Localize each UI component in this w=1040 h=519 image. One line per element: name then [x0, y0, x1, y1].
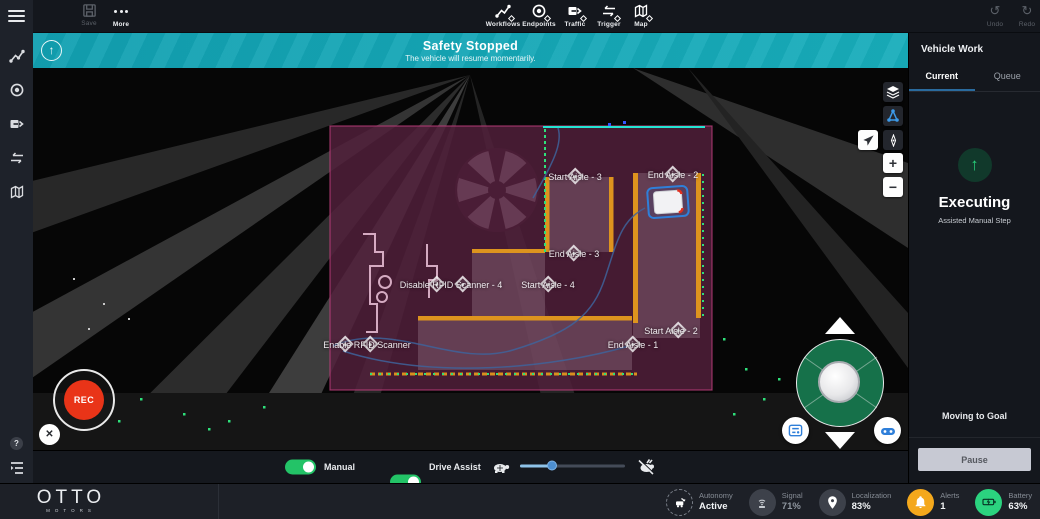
pause-button[interactable]: Pause	[918, 448, 1031, 471]
sidebar-item-trigger[interactable]	[9, 150, 25, 166]
workflows-icon	[9, 48, 25, 64]
more-button[interactable]: More	[101, 3, 141, 28]
map-waypoint[interactable]: Start Aisle - 3	[548, 167, 602, 185]
tool-map[interactable]: Map	[621, 3, 661, 28]
queue-list-icon[interactable]	[9, 461, 25, 475]
wifi-signal-icon	[749, 489, 776, 516]
traffic-icon	[9, 116, 25, 132]
manual-toggle[interactable]	[285, 460, 316, 475]
map-icon	[9, 184, 25, 200]
drive-control-bar: Manual Drive Assist	[33, 450, 908, 483]
executing-arrow-icon: ↑	[958, 148, 992, 182]
waypoint-label: End Aisle - 3	[549, 249, 600, 259]
waypoint-label: End Aisle - 2	[648, 170, 699, 180]
close-record-button[interactable]: ✕	[39, 424, 60, 445]
safety-stopped-banner: ↑ Safety Stopped The vehicle will resume…	[33, 33, 908, 68]
alerts-status[interactable]: Alerts 1	[899, 489, 967, 516]
tool-endpoints[interactable]: Endpoints	[519, 3, 559, 28]
turtle-slow-icon	[491, 460, 511, 474]
map-waypoint[interactable]: Enable RFID Scanner	[323, 335, 411, 353]
map-waypoint[interactable]: End Aisle - 1	[608, 335, 659, 353]
locate-button[interactable]	[858, 130, 878, 150]
map-waypoint[interactable]: End Aisle - 2	[648, 165, 699, 183]
route-graph-button[interactable]	[883, 106, 903, 126]
tab-current[interactable]: Current	[909, 64, 975, 91]
navigation-arrow-icon	[862, 134, 875, 147]
dock-button[interactable]	[782, 417, 809, 444]
map-waypoint[interactable]: Start Aisle - 4	[521, 275, 575, 293]
joystick-down-arrow[interactable]	[825, 432, 855, 449]
sidebar-item-endpoints[interactable]	[9, 82, 25, 98]
vehicle-work-tabs: Current Queue	[909, 64, 1040, 92]
scroll-up-circle-icon[interactable]: ↑	[41, 40, 62, 61]
sidebar-item-traffic[interactable]	[9, 116, 25, 132]
vehicle-action-text: Moving to Goal	[909, 411, 1040, 437]
help-icon[interactable]: ?	[10, 437, 23, 450]
otto-motors-logo: OTTO MOTORS	[26, 489, 116, 513]
zoom-out-button[interactable]: −	[883, 177, 903, 197]
redo-button[interactable]: ↻ Redo	[1007, 3, 1040, 28]
gamepad-button[interactable]	[874, 417, 901, 444]
layers-button[interactable]	[883, 82, 903, 102]
vehicle-marker[interactable]	[647, 186, 689, 219]
vehicle-work-panel: Vehicle Work Current Queue ↑ Executing A…	[908, 33, 1040, 483]
joystick-up-arrow[interactable]	[825, 317, 855, 334]
map-waypoint[interactable]: Disable RFID Scanner - 4	[400, 275, 503, 293]
map-canvas	[33, 68, 908, 450]
waypoint-label: Start Aisle - 3	[548, 172, 602, 182]
redo-icon: ↻	[1022, 3, 1033, 19]
top-toolbar: Save More Workflows Endpoints Traffic Tr…	[33, 0, 1040, 33]
executing-subtitle: Assisted Manual Step	[938, 216, 1011, 225]
autonomy-icon	[666, 489, 693, 516]
location-pin-icon	[819, 489, 846, 516]
waypoint-label: Start Aisle - 4	[521, 280, 575, 290]
battery-charging-icon	[975, 489, 1002, 516]
save-floppy-icon	[82, 3, 97, 18]
joystick[interactable]	[796, 339, 884, 427]
waypoint-label: End Aisle - 1	[608, 340, 659, 350]
record-button[interactable]: REC	[53, 369, 115, 431]
minus-icon: −	[889, 180, 897, 194]
map-waypoint[interactable]: End Aisle - 3	[549, 244, 600, 262]
waypoint-label: Disable RFID Scanner - 4	[400, 280, 503, 290]
gamepad-icon	[880, 423, 896, 439]
battery-status[interactable]: Battery 63%	[967, 489, 1040, 516]
signal-status[interactable]: Signal 71%	[741, 489, 811, 516]
sidebar-item-workflows[interactable]	[9, 48, 25, 64]
panel-title: Vehicle Work	[909, 33, 1040, 64]
speed-slider-handle[interactable]	[547, 461, 557, 471]
tab-queue[interactable]: Queue	[975, 64, 1040, 91]
plus-icon: +	[889, 156, 897, 170]
autonomy-status[interactable]: Autonomy Active	[658, 489, 741, 516]
drive-assist-label: Drive Assist	[429, 462, 481, 472]
trigger-icon	[9, 150, 25, 166]
executing-title: Executing	[939, 194, 1011, 211]
endpoints-icon	[9, 82, 25, 98]
undo-icon: ↺	[990, 3, 1001, 19]
compass-button[interactable]	[883, 130, 903, 150]
rabbit-fast-muted-icon	[637, 459, 655, 475]
joystick-knob[interactable]	[818, 361, 860, 403]
status-bar: OTTO MOTORS Autonomy Active Signal	[0, 483, 1040, 519]
rec-label: REC	[64, 380, 104, 420]
hamburger-menu-icon[interactable]	[8, 10, 25, 22]
tool-workflows[interactable]: Workflows	[483, 3, 523, 28]
layers-icon	[886, 85, 900, 99]
route-graph-icon	[886, 109, 900, 123]
otto-fleet-ui: ? Save More Workflows Endpoints Traffic …	[0, 0, 1040, 519]
zoom-in-button[interactable]: +	[883, 153, 903, 173]
alert-bell-icon	[907, 489, 934, 516]
speed-slider[interactable]	[520, 464, 625, 467]
localization-status[interactable]: Localization 83%	[811, 489, 900, 516]
sidebar-item-map[interactable]	[9, 184, 25, 200]
banner-subtitle: The vehicle will resume momentarily.	[405, 54, 536, 63]
statusbar-divider	[218, 484, 219, 519]
dock-icon	[788, 423, 803, 438]
manual-label: Manual	[324, 462, 355, 472]
left-sidebar: ?	[0, 0, 33, 483]
more-dots-icon	[114, 3, 128, 19]
compass-needle-icon	[887, 134, 900, 147]
waypoint-label: Enable RFID Scanner	[323, 340, 411, 350]
banner-title: Safety Stopped	[423, 39, 518, 53]
facility-map[interactable]: Start Aisle - 3End Aisle - 2End Aisle - …	[33, 68, 908, 450]
